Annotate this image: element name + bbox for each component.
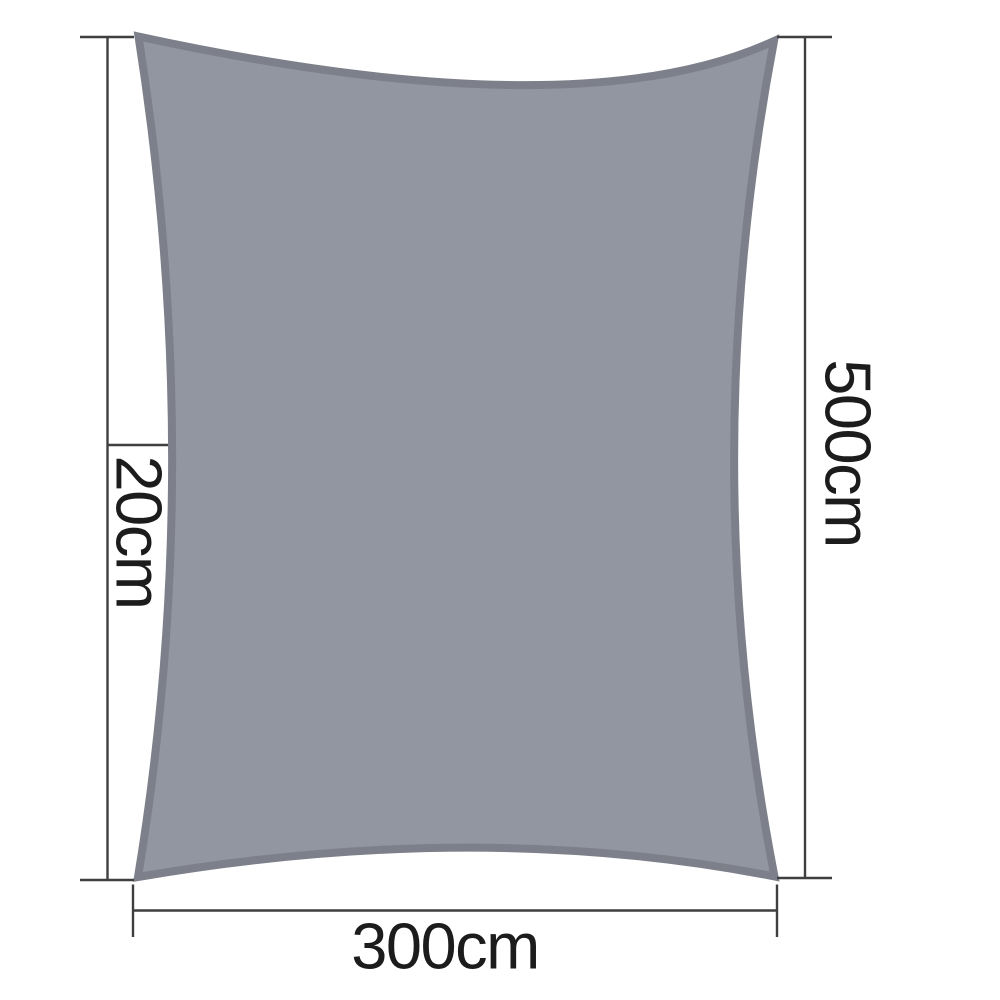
svg-text:300cm: 300cm xyxy=(351,910,539,983)
svg-text:500cm: 500cm xyxy=(812,359,885,547)
svg-text:20cm: 20cm xyxy=(103,456,176,609)
